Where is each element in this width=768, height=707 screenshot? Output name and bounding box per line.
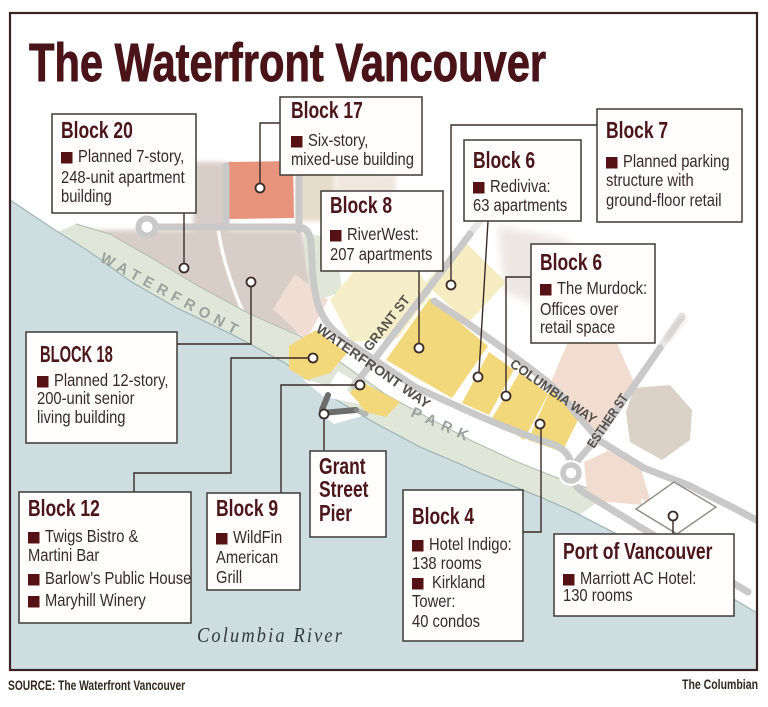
- svg-text:SOURCE: The Waterfront Vancouv: SOURCE: The Waterfront Vancouver: [8, 678, 185, 694]
- svg-text:Block 12: Block 12: [28, 497, 100, 522]
- svg-text:Grant: Grant: [319, 455, 366, 480]
- svg-text:Block 7: Block 7: [606, 119, 668, 144]
- svg-text:mixed-use building: mixed-use building: [291, 150, 414, 170]
- svg-text:building: building: [61, 187, 112, 207]
- svg-text:Columbia River: Columbia River: [197, 623, 344, 647]
- svg-text:40 condos: 40 condos: [412, 612, 480, 632]
- svg-text:RiverWest:: RiverWest:: [347, 225, 419, 245]
- svg-text:63 apartments: 63 apartments: [473, 196, 567, 216]
- svg-text:248-unit apartment: 248-unit apartment: [61, 168, 185, 188]
- svg-text:Planned 12-story,: Planned 12-story,: [54, 371, 168, 391]
- svg-text:The Waterfront Vancouver: The Waterfront Vancouver: [29, 33, 546, 93]
- svg-text:Block 9: Block 9: [216, 497, 278, 522]
- svg-text:Pier: Pier: [319, 502, 352, 527]
- svg-text:207 apartments: 207 apartments: [330, 245, 432, 265]
- svg-text:Hotel Indigo:: Hotel Indigo:: [429, 535, 512, 555]
- svg-text:Block 20: Block 20: [61, 119, 133, 144]
- svg-text:Block 6: Block 6: [540, 251, 602, 276]
- svg-text:BLOCK 18: BLOCK 18: [40, 343, 113, 368]
- svg-text:Twigs Bistro &: Twigs Bistro &: [45, 527, 138, 547]
- svg-text:The Murdock:: The Murdock:: [557, 279, 647, 299]
- svg-text:Maryhill Winery: Maryhill Winery: [45, 591, 146, 611]
- svg-text:living building: living building: [37, 408, 126, 428]
- svg-text:Rediviva:: Rediviva:: [490, 177, 551, 197]
- svg-text:Grill: Grill: [216, 568, 242, 588]
- svg-text:Barlow’s Public House: Barlow’s Public House: [45, 569, 191, 589]
- svg-text:Six-story,: Six-story,: [308, 131, 368, 151]
- svg-text:Planned 7-story,: Planned 7-story,: [78, 147, 184, 167]
- svg-text:Block 8: Block 8: [330, 194, 392, 219]
- svg-text:Block 17: Block 17: [291, 99, 363, 124]
- svg-text:Offices over: Offices over: [540, 300, 619, 320]
- svg-text:Planned parking: Planned parking: [623, 152, 730, 172]
- svg-text:Port of Vancouver: Port of Vancouver: [563, 540, 712, 565]
- svg-text:Martini Bar: Martini Bar: [28, 546, 100, 566]
- svg-text:Block 4: Block 4: [412, 505, 475, 530]
- svg-text:Tower:: Tower:: [412, 592, 455, 612]
- svg-text:WildFin: WildFin: [233, 528, 282, 548]
- svg-text:structure with: structure with: [606, 171, 694, 191]
- svg-text:Kirkland: Kirkland: [432, 573, 485, 593]
- svg-text:Street: Street: [319, 478, 369, 503]
- svg-text:American: American: [216, 548, 278, 568]
- svg-text:138 rooms: 138 rooms: [412, 554, 482, 574]
- svg-text:The Columbian: The Columbian: [682, 677, 758, 693]
- svg-text:retail space: retail space: [540, 318, 615, 338]
- svg-text:Block 6: Block 6: [473, 149, 535, 174]
- svg-text:200-unit senior: 200-unit senior: [37, 389, 135, 409]
- svg-text:ground-floor retail: ground-floor retail: [606, 191, 722, 211]
- svg-text:130 rooms: 130 rooms: [563, 586, 633, 606]
